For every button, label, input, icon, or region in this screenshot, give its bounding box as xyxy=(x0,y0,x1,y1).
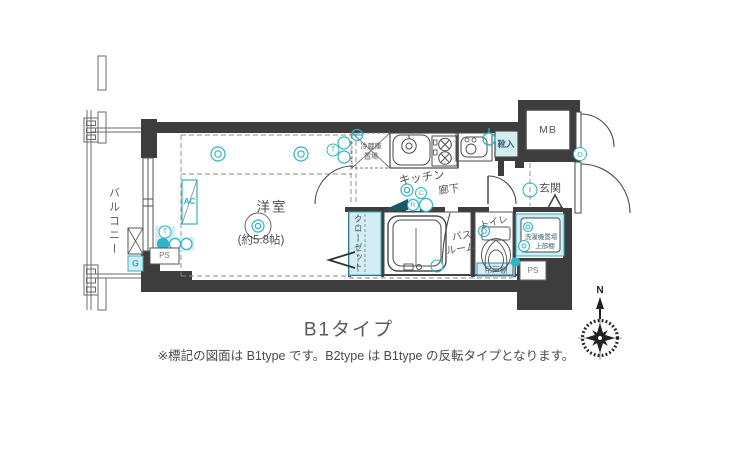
bathtub xyxy=(388,216,446,271)
mb-door-leaf xyxy=(576,112,581,149)
plan-title: B1タイプ xyxy=(304,321,394,340)
entrance-door-arc xyxy=(581,164,630,213)
entry-step-mark xyxy=(548,195,562,208)
balcony-label: バルコニー xyxy=(108,187,119,257)
room-size-label: (約5.8帖) xyxy=(238,235,285,247)
refrigerator-space xyxy=(352,133,390,168)
balcony-railing xyxy=(84,56,141,310)
wash-basin xyxy=(456,133,492,161)
entrance-door-leaf xyxy=(575,162,581,213)
room-label: 洋室 xyxy=(257,200,288,214)
balcony-window xyxy=(142,158,154,251)
ac-label: AC xyxy=(184,198,196,206)
entrance-label: 玄関 xyxy=(539,184,561,195)
north-arrow xyxy=(596,297,604,309)
t-outlet-symbol: T xyxy=(159,226,172,239)
mb-door-arc xyxy=(581,114,614,147)
fridge-label-line1: 冷蔵庫 xyxy=(361,144,382,151)
pipe-shaft-right-label: PS xyxy=(528,267,539,275)
meter-box-label: MB xyxy=(539,125,557,136)
washer-label-line2: 上部棚 xyxy=(535,244,555,251)
shoe-cabinet-label: 靴入 xyxy=(497,140,514,149)
hallway-label: 廊下 xyxy=(438,183,460,196)
hanging-shelf-label: 吊戸棚 xyxy=(485,266,508,274)
toilet-door-arc xyxy=(488,176,516,204)
washer-label-line1: 洗濯機置場 xyxy=(525,235,558,242)
fridge-label-line2: 置場 xyxy=(364,154,378,161)
closet-label: クローゼット xyxy=(354,215,363,272)
room-door-arc xyxy=(315,166,353,204)
toilet-outlet-dot xyxy=(511,257,521,267)
r-outlet-symbol: R xyxy=(407,199,419,211)
kitchen-counter xyxy=(390,133,458,168)
compass-rose xyxy=(578,297,622,360)
direction-triangle xyxy=(384,199,408,210)
c-outlet-symbol: C xyxy=(415,187,427,199)
compass-north-label: N xyxy=(596,286,603,296)
plan-note: ※標記の図面は B1type です。B2type は B1type の反転タイプ… xyxy=(158,350,575,363)
gas-meter-label: G xyxy=(132,259,139,268)
floorplan-page: バルコニー 洋室 (約5.8帖) キッチン 廊下 玄関 トイレ バス ルーム ク… xyxy=(0,0,730,470)
pipe-shaft-left-label: PS xyxy=(159,252,170,260)
t-outlet-symbol-2: T xyxy=(327,144,340,157)
d-outlet-symbol: D xyxy=(573,147,587,161)
